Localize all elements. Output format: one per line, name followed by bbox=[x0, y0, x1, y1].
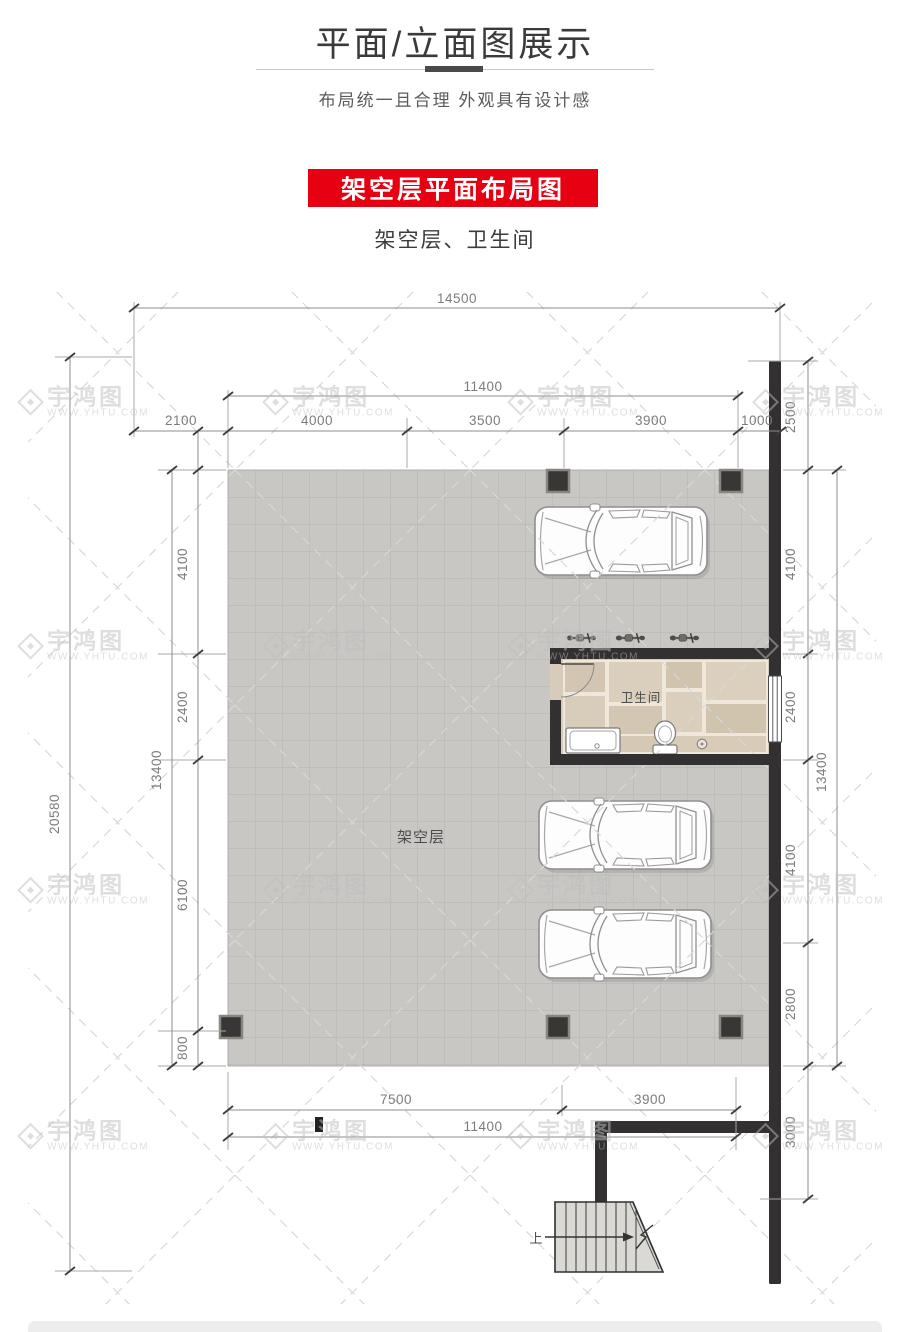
column bbox=[220, 1016, 242, 1038]
stair-enclosure-left-wall bbox=[595, 1133, 607, 1203]
column bbox=[720, 1016, 742, 1038]
room-label-bathroom: 卫生间 bbox=[621, 691, 662, 705]
dim-top-seg-2: 4000 bbox=[301, 413, 333, 428]
bathroom-left-wall-lower bbox=[550, 700, 561, 765]
construction-grid-lines bbox=[28, 292, 876, 1304]
dim-left-seg-4: 800 bbox=[175, 1036, 190, 1060]
dim-bottom-seg-2: 3900 bbox=[634, 1092, 666, 1107]
floorplan-page: 平面/立面图展示 布局统一且合理 外观具有设计感 架空层平面布局图 架空层、卫生… bbox=[0, 0, 910, 1332]
bathroom-left-wall-upper bbox=[550, 648, 561, 664]
bathroom-bottom-wall bbox=[550, 754, 781, 765]
dim-right-seg-4: 2800 bbox=[783, 988, 798, 1020]
entry-marker bbox=[315, 1117, 323, 1132]
dim-right-offset-bottom: 3000 bbox=[783, 1116, 798, 1148]
dim-left-height: 13400 bbox=[149, 750, 164, 790]
dim-bottom-seg-1: 7500 bbox=[380, 1092, 412, 1107]
bathroom-top-wall bbox=[550, 648, 769, 659]
dim-top-seg-1: 2100 bbox=[165, 413, 197, 428]
dim-right-height: 13400 bbox=[814, 752, 829, 792]
dim-total-width: 14500 bbox=[437, 291, 477, 306]
stair-enclosure-top-wall bbox=[595, 1121, 781, 1133]
dim-top-seg-3: 3500 bbox=[469, 413, 501, 428]
dim-right-seg-1: 4100 bbox=[783, 548, 798, 580]
right-exterior-wall bbox=[769, 361, 781, 1284]
bathroom-window bbox=[769, 676, 782, 742]
room-label-stilt-floor: 架空层 bbox=[397, 829, 445, 846]
column bbox=[547, 470, 569, 492]
column bbox=[720, 470, 742, 492]
dim-left-seg-2: 2400 bbox=[175, 691, 190, 723]
dim-top-inner-width: 11400 bbox=[463, 379, 502, 394]
dim-left-seg-1: 4100 bbox=[175, 548, 190, 580]
dim-right-offset-top: 2500 bbox=[783, 401, 798, 433]
column bbox=[547, 1016, 569, 1038]
floor-plan-drawing: 上 bbox=[0, 0, 910, 1332]
dim-top-seg-5: 1000 bbox=[741, 413, 773, 428]
dim-bottom-inner-width: 11400 bbox=[463, 1119, 502, 1134]
dim-total-height: 20580 bbox=[47, 794, 62, 834]
dim-right-seg-2: 2400 bbox=[783, 691, 798, 723]
dim-top-seg-4: 3900 bbox=[635, 413, 667, 428]
dim-right-seg-3: 4100 bbox=[783, 844, 798, 876]
dim-left-seg-3: 6100 bbox=[175, 879, 190, 911]
stairs-up-label: 上 bbox=[529, 1231, 542, 1246]
